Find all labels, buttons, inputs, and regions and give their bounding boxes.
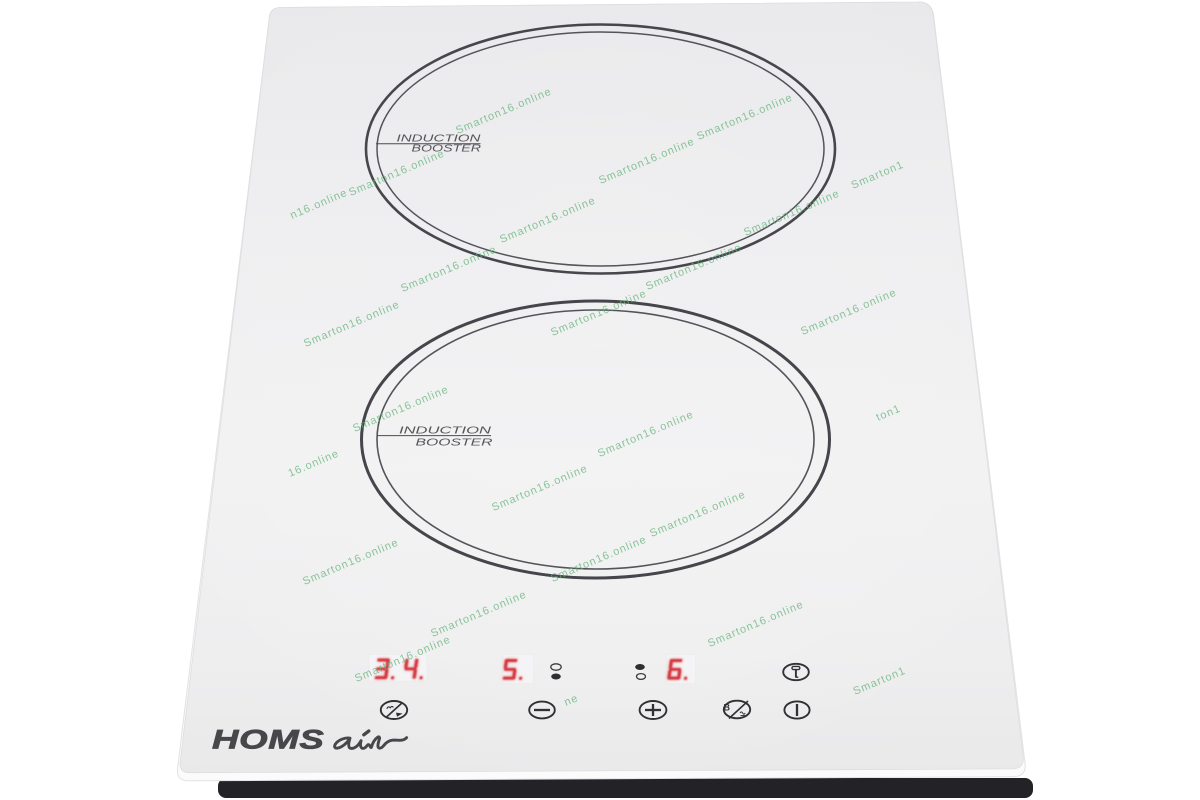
svg-text:HOMS: HOMS [212,724,324,754]
svg-text:BOOSTER: BOOSTER [412,144,482,155]
svg-text:INDUCTION: INDUCTION [399,425,493,436]
svg-text:BOOSTER: BOOSTER [416,437,493,448]
svg-text:B: B [724,703,731,713]
